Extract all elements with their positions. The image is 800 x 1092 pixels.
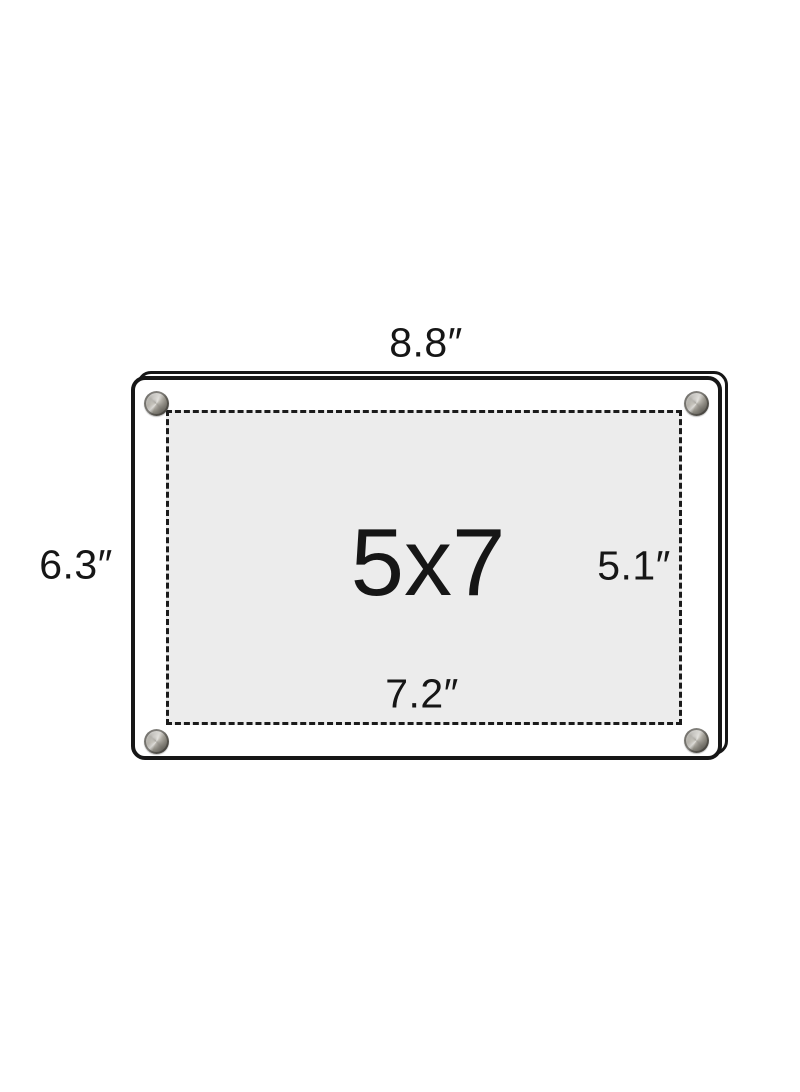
inner-height-label: 5.1″ bbox=[597, 546, 671, 587]
standoff-screw-icon bbox=[684, 728, 709, 753]
product-size-label: 5x7 bbox=[351, 515, 506, 611]
outer-width-label: 8.8″ bbox=[389, 323, 463, 364]
standoff-screw-icon bbox=[684, 391, 709, 416]
standoff-screw-icon bbox=[144, 391, 169, 416]
frame-dimension-diagram: 8.8″ 6.3″ 5.1″ 7.2″ 5x7 bbox=[0, 0, 800, 1092]
standoff-screw-icon bbox=[144, 729, 169, 754]
inner-width-label: 7.2″ bbox=[385, 674, 459, 715]
outer-height-label: 6.3″ bbox=[39, 545, 113, 586]
